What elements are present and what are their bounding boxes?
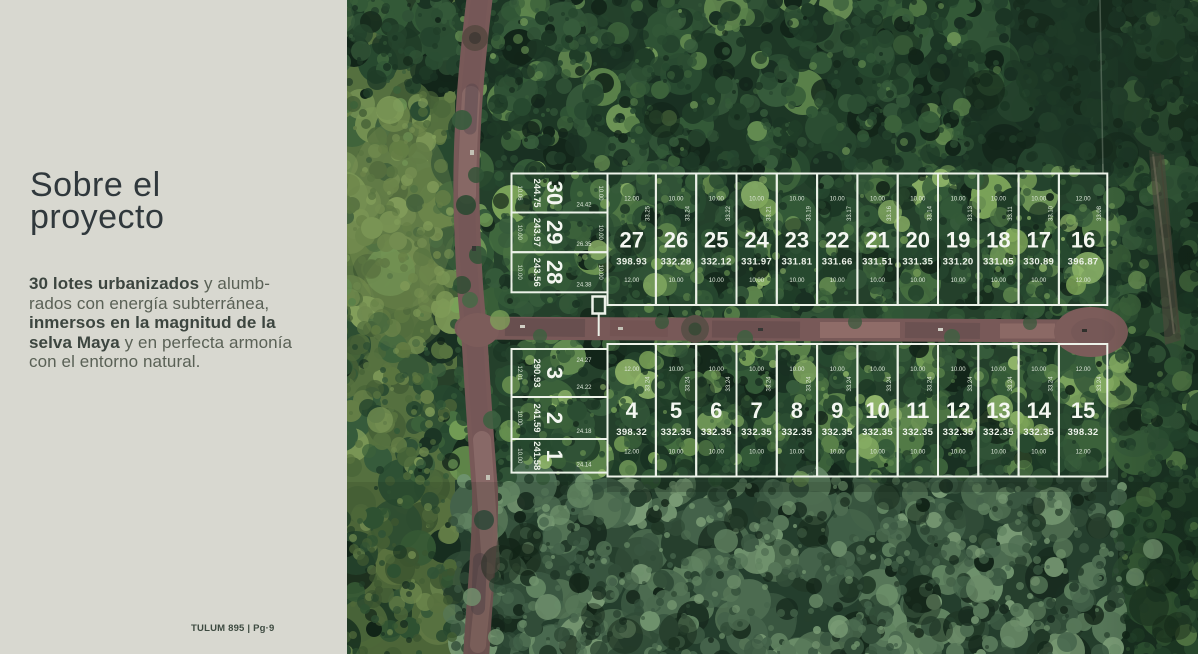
svg-text:332.35: 332.35 — [661, 427, 692, 438]
svg-text:241.59: 241.59 — [531, 403, 542, 432]
svg-text:10.00: 10.00 — [789, 367, 805, 373]
svg-text:332.35: 332.35 — [983, 427, 1014, 438]
svg-text:10.00: 10.00 — [870, 278, 886, 284]
svg-text:10.00: 10.00 — [910, 367, 926, 373]
svg-text:331.97: 331.97 — [741, 257, 772, 268]
svg-text:10.00: 10.00 — [789, 450, 805, 456]
svg-text:33.13: 33.13 — [968, 205, 974, 221]
svg-text:10.00: 10.00 — [709, 450, 725, 456]
svg-text:22: 22 — [825, 228, 849, 253]
svg-text:12.00: 12.00 — [1076, 450, 1092, 456]
svg-text:24.38: 24.38 — [576, 282, 592, 288]
svg-text:241.58: 241.58 — [531, 441, 542, 470]
svg-text:12.00: 12.00 — [624, 197, 640, 203]
svg-text:15: 15 — [1071, 398, 1095, 423]
svg-text:10.00: 10.00 — [668, 278, 684, 284]
svg-text:18: 18 — [986, 228, 1010, 253]
svg-text:6: 6 — [710, 398, 722, 423]
svg-text:10.00: 10.00 — [991, 278, 1007, 284]
svg-text:33.17: 33.17 — [847, 205, 853, 221]
svg-text:24.42: 24.42 — [576, 203, 592, 209]
svg-text:10.00: 10.00 — [951, 197, 967, 203]
svg-text:10.00: 10.00 — [597, 265, 603, 281]
svg-text:10.00: 10.00 — [749, 278, 765, 284]
svg-text:33.24: 33.24 — [928, 376, 934, 392]
svg-text:19: 19 — [946, 228, 970, 253]
svg-text:12: 12 — [946, 398, 970, 423]
svg-text:10.00: 10.00 — [749, 367, 765, 373]
svg-text:7: 7 — [750, 398, 762, 423]
svg-text:26.35: 26.35 — [576, 242, 592, 248]
svg-text:5: 5 — [670, 398, 682, 423]
svg-text:33.14: 33.14 — [928, 205, 934, 221]
svg-text:10.00: 10.00 — [749, 197, 765, 203]
svg-text:10.00: 10.00 — [951, 367, 967, 373]
svg-text:33.24: 33.24 — [726, 376, 732, 392]
svg-text:33.24: 33.24 — [1008, 376, 1014, 392]
svg-text:10.00: 10.00 — [709, 367, 725, 373]
svg-text:33.24: 33.24 — [686, 376, 692, 392]
svg-text:331.51: 331.51 — [862, 257, 893, 268]
svg-text:10.00: 10.00 — [870, 197, 886, 203]
svg-text:331.66: 331.66 — [822, 257, 853, 268]
svg-text:24.14: 24.14 — [576, 463, 592, 469]
svg-text:26: 26 — [664, 228, 688, 253]
svg-text:290.93: 290.93 — [531, 358, 542, 387]
svg-text:12.00: 12.00 — [1076, 367, 1092, 373]
svg-text:33.24: 33.24 — [968, 376, 974, 392]
svg-text:10.00: 10.00 — [991, 197, 1007, 203]
svg-text:10.00: 10.00 — [910, 197, 926, 203]
svg-text:10.00: 10.00 — [516, 448, 522, 464]
svg-text:16: 16 — [1071, 228, 1095, 253]
svg-text:29: 29 — [542, 220, 567, 244]
svg-text:24.18: 24.18 — [576, 429, 592, 435]
svg-text:10.00: 10.00 — [830, 450, 846, 456]
svg-text:13: 13 — [986, 398, 1010, 423]
svg-text:10.00: 10.00 — [668, 450, 684, 456]
svg-text:33.24: 33.24 — [1097, 376, 1103, 392]
svg-text:331.81: 331.81 — [781, 257, 812, 268]
svg-text:10.00: 10.00 — [870, 367, 886, 373]
svg-text:243.97: 243.97 — [531, 218, 542, 247]
svg-text:331.20: 331.20 — [943, 257, 974, 268]
svg-text:4: 4 — [626, 398, 639, 423]
svg-text:10.00: 10.00 — [1031, 197, 1047, 203]
svg-text:24.22: 24.22 — [576, 385, 592, 391]
svg-text:10.00: 10.00 — [991, 450, 1007, 456]
svg-text:10.00: 10.00 — [668, 197, 684, 203]
svg-text:2: 2 — [542, 412, 567, 424]
svg-text:332.35: 332.35 — [781, 427, 812, 438]
svg-text:10.00: 10.00 — [709, 278, 725, 284]
svg-text:23: 23 — [785, 228, 809, 253]
svg-text:8: 8 — [791, 398, 803, 423]
svg-text:12.00: 12.00 — [624, 450, 640, 456]
svg-text:10.00: 10.00 — [830, 278, 846, 284]
svg-text:244.75: 244.75 — [531, 178, 542, 208]
svg-text:33.21: 33.21 — [766, 205, 772, 221]
svg-text:10.00: 10.00 — [991, 367, 1007, 373]
svg-text:398.93: 398.93 — [616, 257, 647, 268]
svg-text:33.24: 33.24 — [807, 376, 813, 392]
svg-text:33.25: 33.25 — [645, 205, 651, 221]
svg-text:10.00: 10.00 — [789, 278, 805, 284]
svg-text:331.35: 331.35 — [902, 257, 933, 268]
svg-text:10.00: 10.00 — [516, 225, 522, 241]
svg-text:24.27: 24.27 — [576, 358, 592, 364]
svg-text:10.00: 10.00 — [749, 450, 765, 456]
svg-text:12.00: 12.00 — [1076, 197, 1092, 203]
svg-text:396.87: 396.87 — [1068, 257, 1099, 268]
svg-text:3: 3 — [542, 367, 567, 379]
svg-text:10.00: 10.00 — [516, 265, 522, 281]
svg-text:21: 21 — [865, 228, 889, 253]
svg-text:25: 25 — [704, 228, 728, 253]
svg-text:10.06: 10.06 — [516, 185, 522, 201]
svg-text:12.00: 12.00 — [1076, 278, 1092, 284]
svg-text:33.24: 33.24 — [686, 205, 692, 221]
svg-text:10: 10 — [865, 398, 889, 423]
svg-text:33.24: 33.24 — [1048, 376, 1054, 392]
svg-text:17: 17 — [1026, 228, 1050, 253]
svg-text:33.24: 33.24 — [766, 376, 772, 392]
svg-text:33.24: 33.24 — [645, 376, 651, 392]
svg-text:33.16: 33.16 — [887, 205, 893, 221]
svg-text:20: 20 — [906, 228, 930, 253]
svg-text:10.00: 10.00 — [789, 197, 805, 203]
svg-text:10.00: 10.00 — [516, 410, 522, 426]
svg-text:332.12: 332.12 — [701, 257, 732, 268]
svg-text:10.00: 10.00 — [1031, 278, 1047, 284]
svg-text:10.00: 10.00 — [830, 367, 846, 373]
svg-text:27: 27 — [619, 228, 643, 253]
svg-text:10.00: 10.00 — [951, 278, 967, 284]
svg-text:33.22: 33.22 — [726, 205, 732, 221]
svg-text:28: 28 — [542, 260, 567, 284]
svg-text:10.00: 10.00 — [910, 450, 926, 456]
svg-text:331.05: 331.05 — [983, 257, 1014, 268]
svg-text:10.00: 10.00 — [597, 185, 603, 201]
svg-text:30: 30 — [542, 181, 567, 205]
svg-text:33.24: 33.24 — [847, 376, 853, 392]
svg-text:10.00: 10.00 — [870, 450, 886, 456]
svg-text:332.35: 332.35 — [902, 427, 933, 438]
svg-text:14: 14 — [1026, 398, 1051, 423]
svg-text:332.35: 332.35 — [943, 427, 974, 438]
svg-text:10.00: 10.00 — [709, 197, 725, 203]
svg-text:398.32: 398.32 — [1068, 427, 1099, 438]
svg-text:243.56: 243.56 — [531, 258, 542, 287]
svg-text:12.00: 12.00 — [624, 278, 640, 284]
svg-text:12.00: 12.00 — [624, 367, 640, 373]
svg-text:24: 24 — [744, 228, 769, 253]
svg-text:12.01: 12.01 — [516, 365, 522, 381]
svg-text:10.00: 10.00 — [951, 450, 967, 456]
svg-text:10.00: 10.00 — [1031, 450, 1047, 456]
svg-text:10.00: 10.00 — [830, 197, 846, 203]
svg-text:33.11: 33.11 — [1008, 206, 1014, 221]
svg-text:10.00: 10.00 — [1031, 367, 1047, 373]
svg-text:11: 11 — [906, 398, 929, 423]
svg-text:332.35: 332.35 — [1023, 427, 1054, 438]
svg-text:33.10: 33.10 — [1048, 205, 1054, 221]
svg-text:33.19: 33.19 — [807, 205, 813, 221]
svg-text:330.89: 330.89 — [1023, 257, 1054, 268]
svg-text:332.35: 332.35 — [741, 427, 772, 438]
svg-text:10.00: 10.00 — [668, 367, 684, 373]
svg-text:332.35: 332.35 — [862, 427, 893, 438]
svg-text:332.35: 332.35 — [822, 427, 853, 438]
svg-text:332.28: 332.28 — [661, 257, 692, 268]
svg-text:33.08: 33.08 — [1097, 205, 1103, 221]
svg-text:9: 9 — [831, 398, 843, 423]
svg-text:10.00: 10.00 — [910, 278, 926, 284]
svg-text:10.00: 10.00 — [597, 225, 603, 241]
svg-text:398.32: 398.32 — [616, 427, 647, 438]
svg-text:332.35: 332.35 — [701, 427, 732, 438]
svg-text:1: 1 — [542, 450, 567, 462]
svg-text:33.24: 33.24 — [887, 376, 893, 392]
